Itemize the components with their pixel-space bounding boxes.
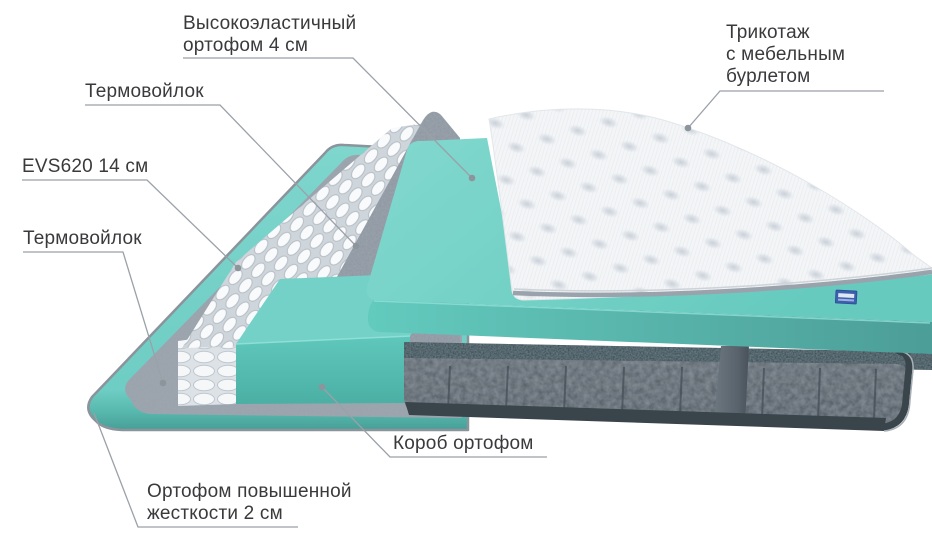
label-line: Ортофом повышенной	[147, 481, 352, 503]
label-base-foam: Ортофом повышенной жесткости 2 см	[147, 481, 352, 525]
quilt-mesh	[489, 109, 932, 300]
leader-dot	[469, 175, 476, 182]
label-felt-lower: Термовойлок	[23, 228, 142, 250]
leader-dot	[160, 380, 167, 387]
label-line: Термовойлок	[85, 81, 204, 103]
label-top-foam: Высокоэластичный ортофом 4 см	[183, 13, 356, 57]
label-felt-upper: Термовойлок	[85, 81, 204, 103]
label-line: Термовойлок	[23, 228, 142, 250]
leader-knit-cover	[688, 91, 884, 128]
mattress-layers-screenshot: Высокоэластичный ортофом 4 см Термовойло…	[0, 0, 932, 541]
brand-tag	[835, 290, 857, 304]
foam-box-front	[236, 336, 410, 404]
leader-dot	[235, 265, 242, 272]
label-line: бурлетом	[726, 66, 845, 88]
leader-dot	[319, 384, 326, 391]
label-line: Высокоэластичный	[183, 13, 356, 35]
label-line: Короб ортофом	[393, 433, 534, 455]
label-line: EVS620 14 см	[22, 156, 148, 178]
label-foam-box: Короб ортофом	[393, 433, 534, 455]
leader-springs	[22, 180, 238, 268]
label-line: ортофом 4 см	[183, 35, 356, 57]
label-spring-unit: EVS620 14 см	[22, 156, 148, 178]
label-line: Трикотаж	[726, 22, 845, 44]
label-knit-cover: Трикотаж с мебельным бурлетом	[726, 22, 845, 88]
label-line: с мебельным	[726, 44, 845, 66]
leader-dot	[353, 243, 360, 250]
label-line: жесткости 2 см	[147, 503, 352, 525]
leader-dot	[685, 125, 692, 132]
